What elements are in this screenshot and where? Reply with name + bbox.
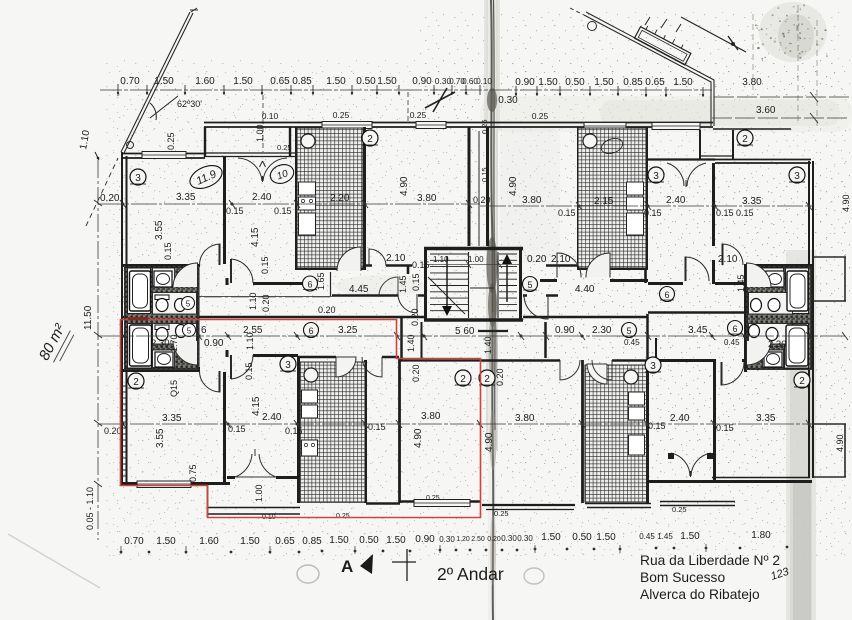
svg-text:2.30: 2.30 [592,325,612,336]
svg-text:6: 6 [307,280,312,290]
svg-text:4.90: 4.90 [399,176,410,196]
svg-text:1.65: 1.65 [316,272,326,290]
svg-text:2: 2 [133,377,139,388]
svg-text:0.15: 0.15 [411,273,421,291]
svg-text:1.70: 1.70 [169,334,179,352]
svg-text:0.15: 0.15 [648,421,666,431]
svg-text:0.25: 0.25 [166,132,176,150]
svg-text:0.15: 0.15 [716,423,734,433]
svg-text:0.90: 0.90 [412,76,432,87]
svg-text:3.80: 3.80 [421,411,441,422]
svg-text:1.20: 1.20 [456,536,470,543]
svg-text:3.35: 3.35 [176,192,196,203]
svg-text:6: 6 [732,324,737,334]
svg-text:6: 6 [664,290,669,300]
svg-text:6: 6 [308,326,313,336]
svg-text:1.45: 1.45 [736,274,746,292]
svg-text:0.25: 0.25 [672,505,687,514]
svg-text:Rua da Liberdade Nº 2: Rua da Liberdade Nº 2 [640,553,780,568]
svg-text:6: 6 [201,325,207,336]
svg-text:0.15: 0.15 [644,208,662,218]
svg-text:0.25: 0.25 [494,509,509,518]
svg-text:4.90: 4.90 [508,176,519,196]
svg-text:5: 5 [626,326,631,336]
svg-text:1.50: 1.50 [594,77,614,88]
svg-text:0.20: 0.20 [410,308,420,326]
svg-text:0.05 - 1.10: 0.05 - 1.10 [85,487,95,530]
svg-text:2.10: 2.10 [551,254,571,265]
svg-text:5: 5 [187,327,192,336]
svg-text:1.50: 1.50 [377,76,397,87]
svg-text:3: 3 [653,171,659,182]
svg-text:0.85: 0.85 [292,76,312,87]
svg-text:3.55: 3.55 [155,428,166,448]
svg-text:1.50: 1.50 [596,532,616,543]
svg-text:3.80: 3.80 [742,77,762,88]
svg-text:5: 5 [186,300,191,309]
svg-text:0.15: 0.15 [736,208,754,218]
svg-text:0.15: 0.15 [226,206,244,216]
svg-text:5: 5 [527,280,532,290]
svg-text:1.40: 1.40 [406,334,416,352]
svg-text:0.50: 0.50 [356,76,376,87]
svg-text:1.60: 1.60 [199,536,219,547]
svg-text:1.50: 1.50 [386,535,406,546]
svg-text:1.50: 1.50 [233,76,253,87]
svg-text:2.10: 2.10 [718,254,738,265]
svg-text:0.20: 0.20 [495,368,505,386]
svg-text:2.15: 2.15 [594,196,614,207]
svg-text:3.55: 3.55 [154,220,165,240]
svg-text:3.35: 3.35 [756,413,776,424]
svg-text:0.50: 0.50 [572,532,592,543]
svg-text:0.20: 0.20 [100,193,120,204]
svg-text:1.50: 1.50 [680,531,700,542]
svg-text:2.40: 2.40 [670,413,690,424]
svg-text:0.70: 0.70 [124,536,144,547]
svg-text:0.50: 0.50 [359,535,379,546]
svg-text:1.45: 1.45 [657,532,673,541]
svg-text:1.00: 1.00 [255,124,265,142]
svg-text:2º Andar: 2º Andar [437,564,504,584]
svg-text:Alverca do Ribatejo: Alverca do Ribatejo [640,587,760,602]
svg-text:3: 3 [650,361,656,372]
svg-text:0.15: 0.15 [163,242,173,260]
svg-text:0.25: 0.25 [333,110,350,120]
svg-text:1.40: 1.40 [483,336,493,354]
svg-text:3.60: 3.60 [756,105,776,116]
svg-text:0.30: 0.30 [517,534,533,543]
svg-text:4.90: 4.90 [484,432,495,452]
svg-text:0.50: 0.50 [565,77,585,88]
svg-text:0.20: 0.20 [104,426,122,436]
svg-text:2: 2 [742,134,748,145]
svg-text:1.50: 1.50 [673,77,693,88]
svg-text:2.10: 2.10 [386,253,406,264]
svg-text:3.25: 3.25 [338,325,358,336]
svg-text:4.90: 4.90 [413,428,424,448]
svg-text:0.25: 0.25 [532,111,549,121]
svg-text:1.45: 1.45 [398,275,408,293]
svg-text:0.65: 0.65 [645,77,665,88]
svg-text:0.25: 0.25 [426,495,440,502]
svg-text:0.25: 0.25 [480,119,489,134]
svg-text:1.50: 1.50 [156,536,176,547]
svg-text:1.10: 1.10 [433,255,449,264]
svg-text:0.15: 0.15 [260,256,270,274]
svg-text:1.10: 1.10 [248,292,258,310]
svg-text:0.90: 0.90 [204,338,224,349]
svg-text:2.40: 2.40 [262,412,282,423]
svg-text:4.40: 4.40 [575,284,595,295]
svg-text:3: 3 [794,171,800,182]
svg-text:4.90: 4.90 [841,194,851,212]
svg-text:0.20: 0.20 [411,364,421,382]
svg-text:Q15: Q15 [169,380,179,397]
svg-text:0.15: 0.15 [480,167,489,182]
svg-text:1.00: 1.00 [468,255,484,264]
svg-text:3.80: 3.80 [417,193,437,204]
svg-text:2.30: 2.30 [768,339,787,350]
svg-text:1.50: 1.50 [541,532,561,543]
svg-text:2.40: 2.40 [666,195,686,206]
svg-text:0.45: 0.45 [724,338,740,347]
svg-text:0.85: 0.85 [623,77,643,88]
svg-text:0.65: 0.65 [270,76,290,87]
svg-text:1.50: 1.50 [326,76,346,87]
svg-text:0.90: 0.90 [515,77,535,88]
svg-text:3: 3 [285,360,291,371]
svg-text:0.75: 0.75 [188,464,198,482]
svg-text:2.30: 2.30 [151,338,170,349]
svg-text:3.80: 3.80 [515,413,535,424]
svg-text:0.20: 0.20 [487,536,501,543]
svg-text:1.80: 1.80 [751,530,771,541]
svg-text:0.90: 0.90 [415,534,435,545]
svg-text:0.25: 0.25 [277,143,292,152]
svg-text:0.15: 0.15 [244,362,254,380]
svg-text:2.55: 2.55 [243,325,263,336]
svg-text:Bom Sucesso: Bom Sucesso [640,570,725,585]
svg-text:62º30': 62º30' [177,99,202,109]
svg-text:5 60: 5 60 [455,326,475,337]
svg-text:2: 2 [484,374,490,385]
svg-text:0.30: 0.30 [498,95,518,106]
svg-text:3.35: 3.35 [742,196,762,207]
svg-text:3.45: 3.45 [688,325,708,336]
svg-text:0.15: 0.15 [228,424,246,434]
svg-text:0.85: 0.85 [302,536,322,547]
svg-text:2: 2 [799,376,805,387]
svg-text:0.15: 0.15 [412,260,430,270]
svg-text:A: A [341,557,353,576]
svg-text:4.15: 4.15 [251,396,262,416]
svg-text:0.30: 0.30 [439,535,455,544]
svg-text:0.30: 0.30 [501,534,517,543]
svg-text:0.65: 0.65 [275,536,295,547]
svg-text:0.20: 0.20 [527,254,547,265]
svg-text:0.45: 0.45 [639,532,655,541]
svg-text:2: 2 [367,134,373,145]
svg-text:0.20: 0.20 [261,294,271,312]
svg-text:1.50: 1.50 [538,77,558,88]
svg-text:0.45: 0.45 [624,338,640,347]
svg-text:3.80: 3.80 [522,195,542,206]
svg-text:0.70: 0.70 [120,76,140,87]
svg-text:1.60: 1.60 [195,76,215,87]
svg-text:4.15: 4.15 [250,227,261,247]
svg-text:0.20: 0.20 [318,305,336,315]
svg-text:2.40: 2.40 [252,192,272,203]
svg-text:0.10: 0.10 [476,77,492,86]
svg-text:0.25: 0.25 [410,110,427,120]
svg-text:0.25: 0.25 [336,513,350,520]
svg-text:4.45: 4.45 [349,284,369,295]
svg-text:0.15: 0.15 [285,426,303,436]
svg-text:0.15: 0.15 [716,208,734,218]
svg-text:0.15: 0.15 [368,422,386,432]
svg-text:1.50: 1.50 [329,535,349,546]
svg-text:0.90: 0.90 [555,325,575,336]
svg-text:11.50: 11.50 [83,305,94,330]
svg-text:2.20: 2.20 [330,193,350,204]
svg-text:1.00: 1.00 [254,484,264,502]
svg-text:1.50: 1.50 [240,536,260,547]
svg-text:2.50: 2.50 [471,536,485,543]
svg-text:4.90: 4.90 [835,434,845,452]
svg-text:0.10: 0.10 [262,111,279,121]
svg-text:3: 3 [135,173,141,184]
svg-text:0.20: 0.20 [473,195,491,205]
svg-text:3.35: 3.35 [162,413,182,424]
svg-text:0.15: 0.15 [274,206,292,216]
svg-text:2: 2 [460,374,466,385]
svg-text:0.15: 0.15 [558,208,576,218]
